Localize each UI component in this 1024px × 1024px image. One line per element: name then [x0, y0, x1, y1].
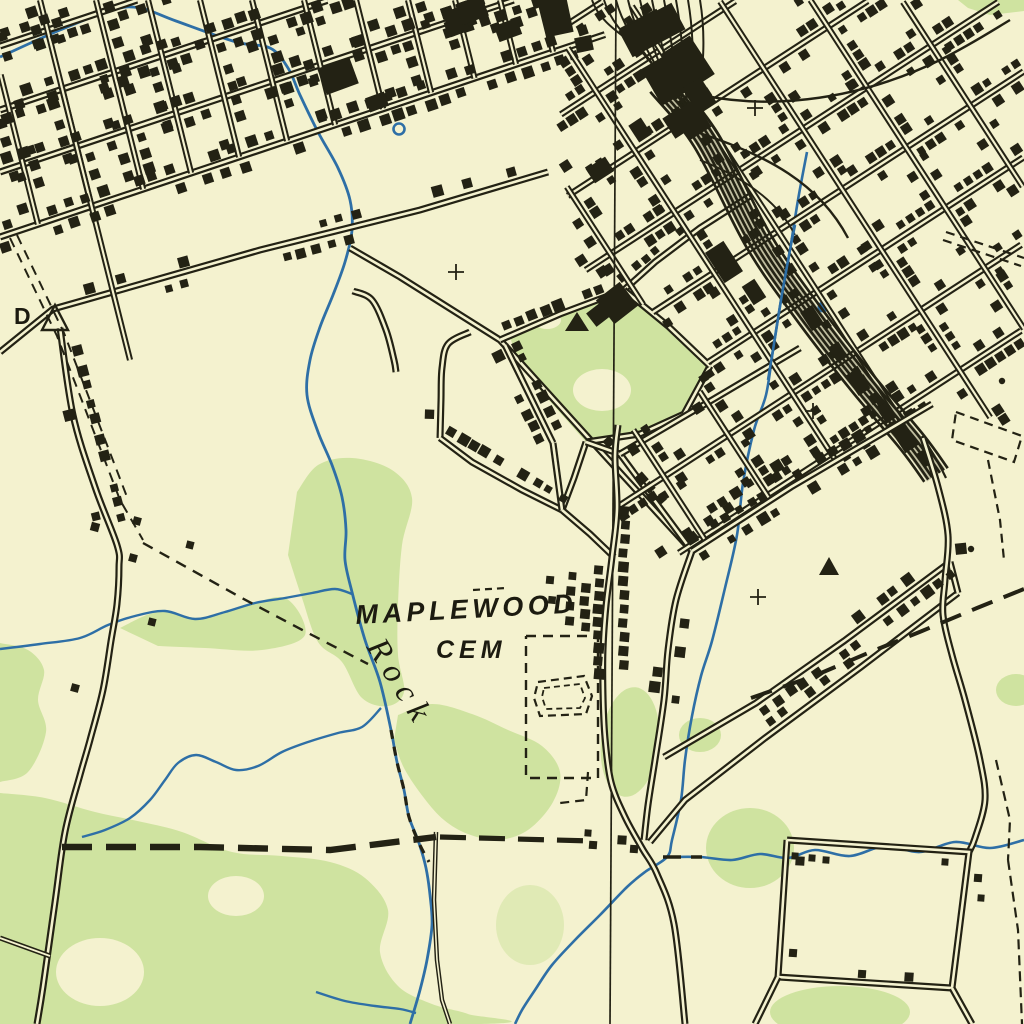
- svg-text:CEM: CEM: [436, 636, 507, 664]
- svg-text:D: D: [14, 303, 31, 329]
